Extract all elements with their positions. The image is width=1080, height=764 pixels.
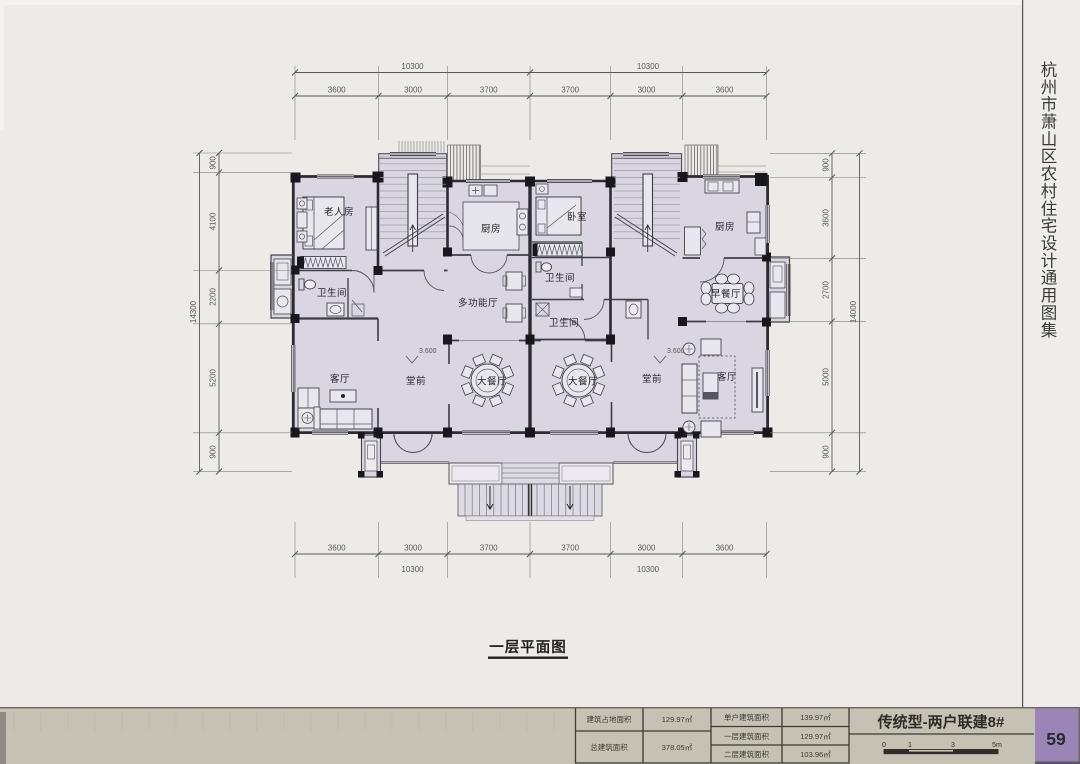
svg-text:堂前: 堂前 [642,373,662,385]
svg-text:59: 59 [1046,729,1066,749]
svg-text:900: 900 [822,158,831,172]
svg-text:129.97㎡: 129.97㎡ [662,715,693,724]
svg-text:大餐厅: 大餐厅 [568,376,598,388]
svg-text:集: 集 [1041,321,1058,340]
svg-text:大餐厅: 大餐厅 [477,376,507,388]
svg-text:4100: 4100 [209,212,218,230]
svg-text:厨房: 厨房 [715,221,735,233]
svg-text:单户建筑面积: 单户建筑面积 [724,712,769,722]
svg-text:厨房: 厨房 [481,223,501,235]
svg-text:二层建筑面积: 二层建筑面积 [724,749,769,759]
svg-text:1: 1 [908,742,912,749]
svg-text:住: 住 [1041,199,1058,218]
svg-text:用: 用 [1041,287,1058,305]
svg-text:900: 900 [822,445,831,459]
svg-text:一层平面图: 一层平面图 [489,639,567,656]
svg-text:村: 村 [1041,182,1058,201]
svg-text:市: 市 [1041,95,1058,114]
svg-text:3.600: 3.600 [419,348,437,355]
svg-text:通: 通 [1041,269,1058,288]
svg-text:3000: 3000 [638,544,656,553]
svg-text:卫生间: 卫生间 [317,287,347,299]
svg-text:3000: 3000 [404,544,422,553]
svg-text:5000: 5000 [822,368,831,386]
svg-text:5200: 5200 [209,369,218,387]
svg-text:设: 设 [1041,234,1058,253]
svg-text:129.97㎡: 129.97㎡ [800,732,831,741]
svg-text:3700: 3700 [561,544,579,553]
svg-text:103.96㎡: 103.96㎡ [800,750,831,759]
svg-text:2200: 2200 [209,288,218,306]
svg-text:州: 州 [1041,79,1058,97]
svg-text:3000: 3000 [638,86,656,95]
svg-text:卫生间: 卫生间 [549,317,579,329]
svg-text:14300: 14300 [189,300,198,323]
svg-text:3700: 3700 [480,86,498,95]
svg-text:卧室: 卧室 [567,211,587,223]
svg-text:3700: 3700 [480,544,498,553]
svg-text:一层建筑面积: 一层建筑面积 [724,731,769,741]
svg-text:10300: 10300 [637,62,660,71]
svg-text:2700: 2700 [822,281,831,299]
svg-text:3: 3 [951,742,955,749]
svg-text:3600: 3600 [716,86,734,95]
svg-text:900: 900 [209,156,218,170]
svg-text:10300: 10300 [637,565,660,574]
svg-text:区: 区 [1041,148,1058,166]
svg-text:图: 图 [1041,304,1058,322]
svg-text:早餐厅: 早餐厅 [711,288,741,300]
svg-text:10300: 10300 [401,62,424,71]
svg-text:378.05㎡: 378.05㎡ [662,743,693,752]
svg-text:客厅: 客厅 [717,371,737,383]
svg-text:3600: 3600 [328,86,346,95]
svg-text:堂前: 堂前 [406,375,426,387]
svg-text:0: 0 [882,742,886,749]
svg-text:3000: 3000 [404,86,422,95]
svg-text:传统型-两户联建8#: 传统型-两户联建8# [877,713,1005,731]
svg-text:多功能厅: 多功能厅 [458,297,498,309]
svg-text:杭: 杭 [1041,61,1058,80]
svg-text:3.600: 3.600 [667,348,685,355]
svg-text:3600: 3600 [822,209,831,227]
svg-text:139.97㎡: 139.97㎡ [800,713,831,722]
svg-text:农: 农 [1041,165,1058,184]
svg-text:900: 900 [209,445,218,459]
svg-text:14000: 14000 [849,300,858,323]
svg-text:3600: 3600 [328,544,346,553]
svg-text:宅: 宅 [1041,217,1058,236]
svg-text:计: 计 [1041,251,1058,270]
svg-text:总建筑面积: 总建筑面积 [590,742,628,752]
svg-text:老人房: 老人房 [324,206,354,218]
svg-text:建筑占地面积: 建筑占地面积 [587,714,632,724]
svg-text:5m: 5m [992,742,1002,749]
svg-text:3700: 3700 [561,86,579,95]
svg-text:萧: 萧 [1041,113,1058,132]
svg-text:3600: 3600 [716,544,734,553]
svg-text:山: 山 [1041,130,1058,149]
svg-text:卫生间: 卫生间 [545,272,575,284]
svg-text:客厅: 客厅 [330,373,350,385]
svg-text:10300: 10300 [401,565,424,574]
